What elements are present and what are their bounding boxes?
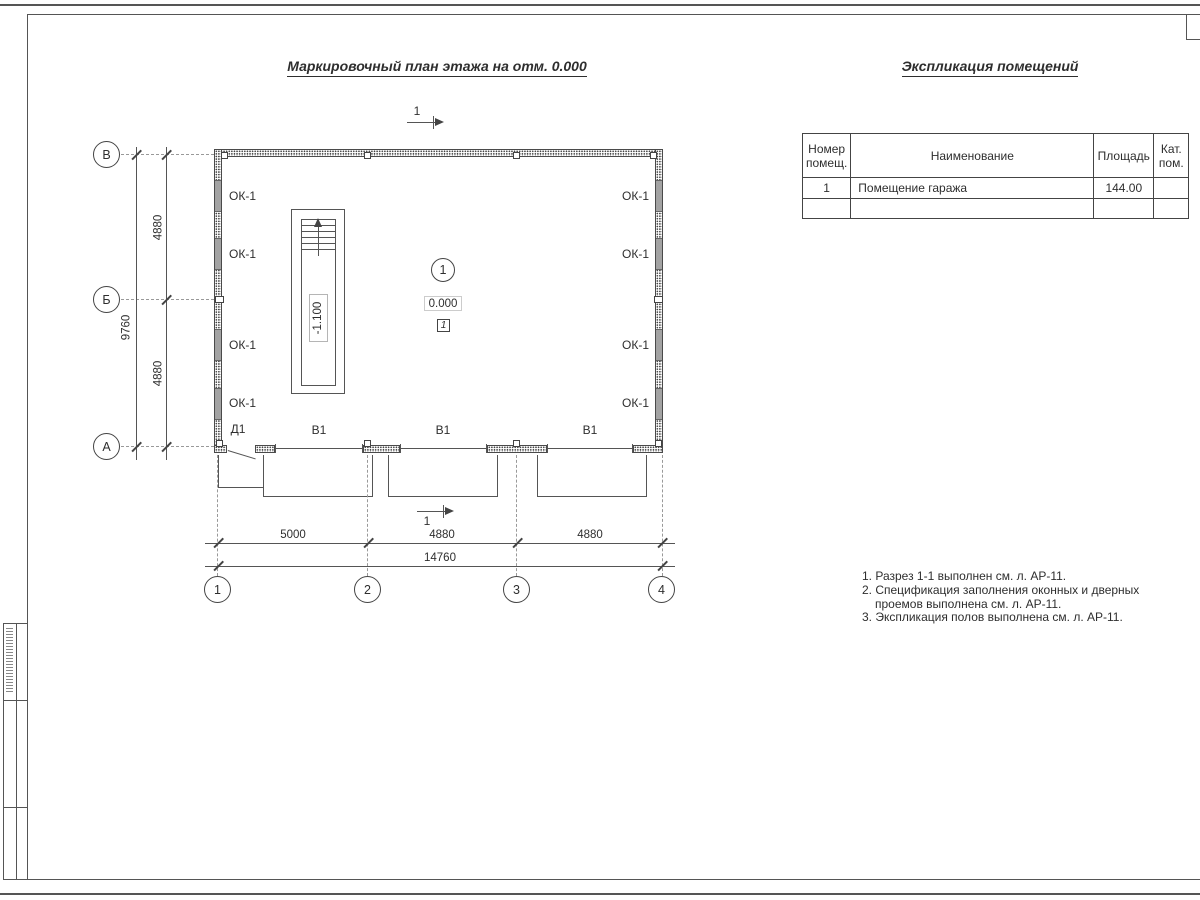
wall-top [214,149,663,157]
gate-opening-tick [400,444,401,453]
window-label: ОК-1 [229,338,256,352]
window-label: ОК-1 [229,189,256,203]
room-area-cell: 144.00 [1094,178,1154,199]
axis-marker [216,440,223,447]
axis-marker [513,152,520,159]
section-arrow-icon [435,118,444,126]
grid-line-2 [367,455,368,576]
dim-label-4880: 4880 [152,198,165,258]
frame-corner-box [1186,15,1200,40]
empty-cell [1154,199,1189,219]
gate-opening-tick [362,444,363,453]
plan-title-wrap: Маркировочный план этажа на отм. 0.000 [277,58,597,77]
axis-marker [650,152,657,159]
gate-label: В1 [303,423,335,437]
gate-label: В1 [427,423,459,437]
titleblock-strip-outer-line [3,623,4,880]
table-header-cat: Кат. пом. [1154,134,1189,178]
grid-circle-col: 3 [503,576,530,603]
window-label: ОК-1 [622,396,649,410]
gate-opening-line [275,448,363,449]
grid-line-4 [662,455,663,576]
door-label: Д1 [226,422,250,436]
section-number-top: 1 [409,104,425,118]
room-number-cell: 1 [803,178,851,199]
dim-label-4880: 4880 [152,344,165,404]
empty-cell [851,199,1094,219]
axis-marker [221,152,228,159]
titleblock-strip-divider [3,807,28,808]
explication-title-wrap: Экспликация помещений [885,58,1095,77]
dim-label-5000: 5000 [263,529,323,541]
zero-elevation-mark: 0.000 [424,296,462,311]
gate-opening-line [547,448,633,449]
gate-opening-tick [275,444,276,453]
titleblock-strip-divider [3,700,28,701]
plan-title: Маркировочный план этажа на отм. 0.000 [287,58,587,77]
note-line: 3. Экспликация полов выполнена см. л. АР… [862,611,1162,625]
window-ok1 [215,388,221,420]
titleblock-vertical-text [6,628,13,692]
stair-elevation-label: -1.100 [312,294,324,342]
window-label: ОК-1 [622,247,649,261]
empty-cell [1094,199,1154,219]
axis-marker [513,440,520,447]
titleblock-strip-divider [3,623,28,624]
window-ok1 [656,388,662,420]
table-row [803,199,1189,219]
sheet-bottom-edge [0,893,1200,895]
sheet-top-edge [0,4,1200,6]
dim-label-9760: 9760 [120,298,133,358]
dim-label-14760: 14760 [410,552,470,564]
room-name-cell: Помещение гаража [851,178,1094,199]
dim-label-4880: 4880 [560,529,620,541]
table-header-name: Наименование [851,134,1094,178]
dim-label-4880: 4880 [412,529,472,541]
table-header-row: Номер помещ. Наименование Площадь Кат. п… [803,134,1189,178]
dim-line-vertical-segments [166,147,167,460]
explication-table: Номер помещ. Наименование Площадь Кат. п… [802,133,1189,219]
window-label: ОК-1 [622,189,649,203]
dim-line-horizontal-segments [205,543,675,544]
floor-type-mark: 1 [437,319,450,332]
room-cat-cell [1154,178,1189,199]
gate-opening-tick [632,444,633,453]
axis-marker [215,296,224,303]
note-line: проемов выполнена см. л. АР-11. [862,598,1162,612]
grid-circle-row: А [93,433,120,460]
axis-marker [654,296,663,303]
gate-apron [263,455,373,497]
gate-opening-tick [486,444,487,453]
window-label: ОК-1 [229,396,256,410]
axis-marker [364,440,371,447]
stair-direction-line [318,224,319,256]
table-row: 1 Помещение гаража 144.00 [803,178,1189,199]
wall-bottom-pier [255,445,275,453]
window-label: ОК-1 [229,247,256,261]
gate-apron [388,455,498,497]
dim-line-horizontal-total [205,566,675,567]
stair-direction-arrow-icon [314,218,322,227]
section-tick-top [433,116,434,129]
window-ok1 [215,238,221,270]
gate-apron [537,455,647,497]
grid-circle-col: 4 [648,576,675,603]
grid-line-3 [516,455,517,576]
table-header-num: Номер помещ. [803,134,851,178]
section-tick-bottom [443,505,444,518]
window-ok1 [215,329,221,361]
note-line: 1. Разрез 1-1 выполнен см. л. АР-11. [862,570,1162,584]
axis-marker [364,152,371,159]
room-number-circle: 1 [431,258,455,282]
axis-marker [655,440,662,447]
grid-circle-col: 1 [204,576,231,603]
window-ok1 [656,329,662,361]
gate-opening-line [400,448,487,449]
drawing-sheet: Маркировочный план этажа на отм. 0.000 Э… [0,0,1200,900]
section-number-bottom: 1 [419,514,435,528]
gate-label: В1 [574,423,606,437]
titleblock-strip-inner-line [16,623,17,880]
window-ok1 [656,238,662,270]
grid-line-1 [217,455,218,576]
titleblock-strip-divider [3,879,28,880]
section-arrow-icon [445,507,454,515]
section-line-top [407,122,435,123]
notes-block: 1. Разрез 1-1 выполнен см. л. АР-11. 2. … [862,570,1162,625]
grid-circle-row: Б [93,286,120,313]
table-header-area: Площадь [1094,134,1154,178]
note-line: 2. Спецификация заполнения оконных и две… [862,584,1162,598]
grid-circle-col: 2 [354,576,381,603]
grid-circle-row: В [93,141,120,168]
explication-title: Экспликация помещений [902,58,1079,77]
dim-line-vertical-total [136,147,137,460]
window-label: ОК-1 [622,338,649,352]
gate-opening-tick [547,444,548,453]
window-ok1 [215,180,221,212]
window-ok1 [656,180,662,212]
empty-cell [803,199,851,219]
section-line-bottom [417,511,445,512]
entrance-porch [218,455,263,488]
